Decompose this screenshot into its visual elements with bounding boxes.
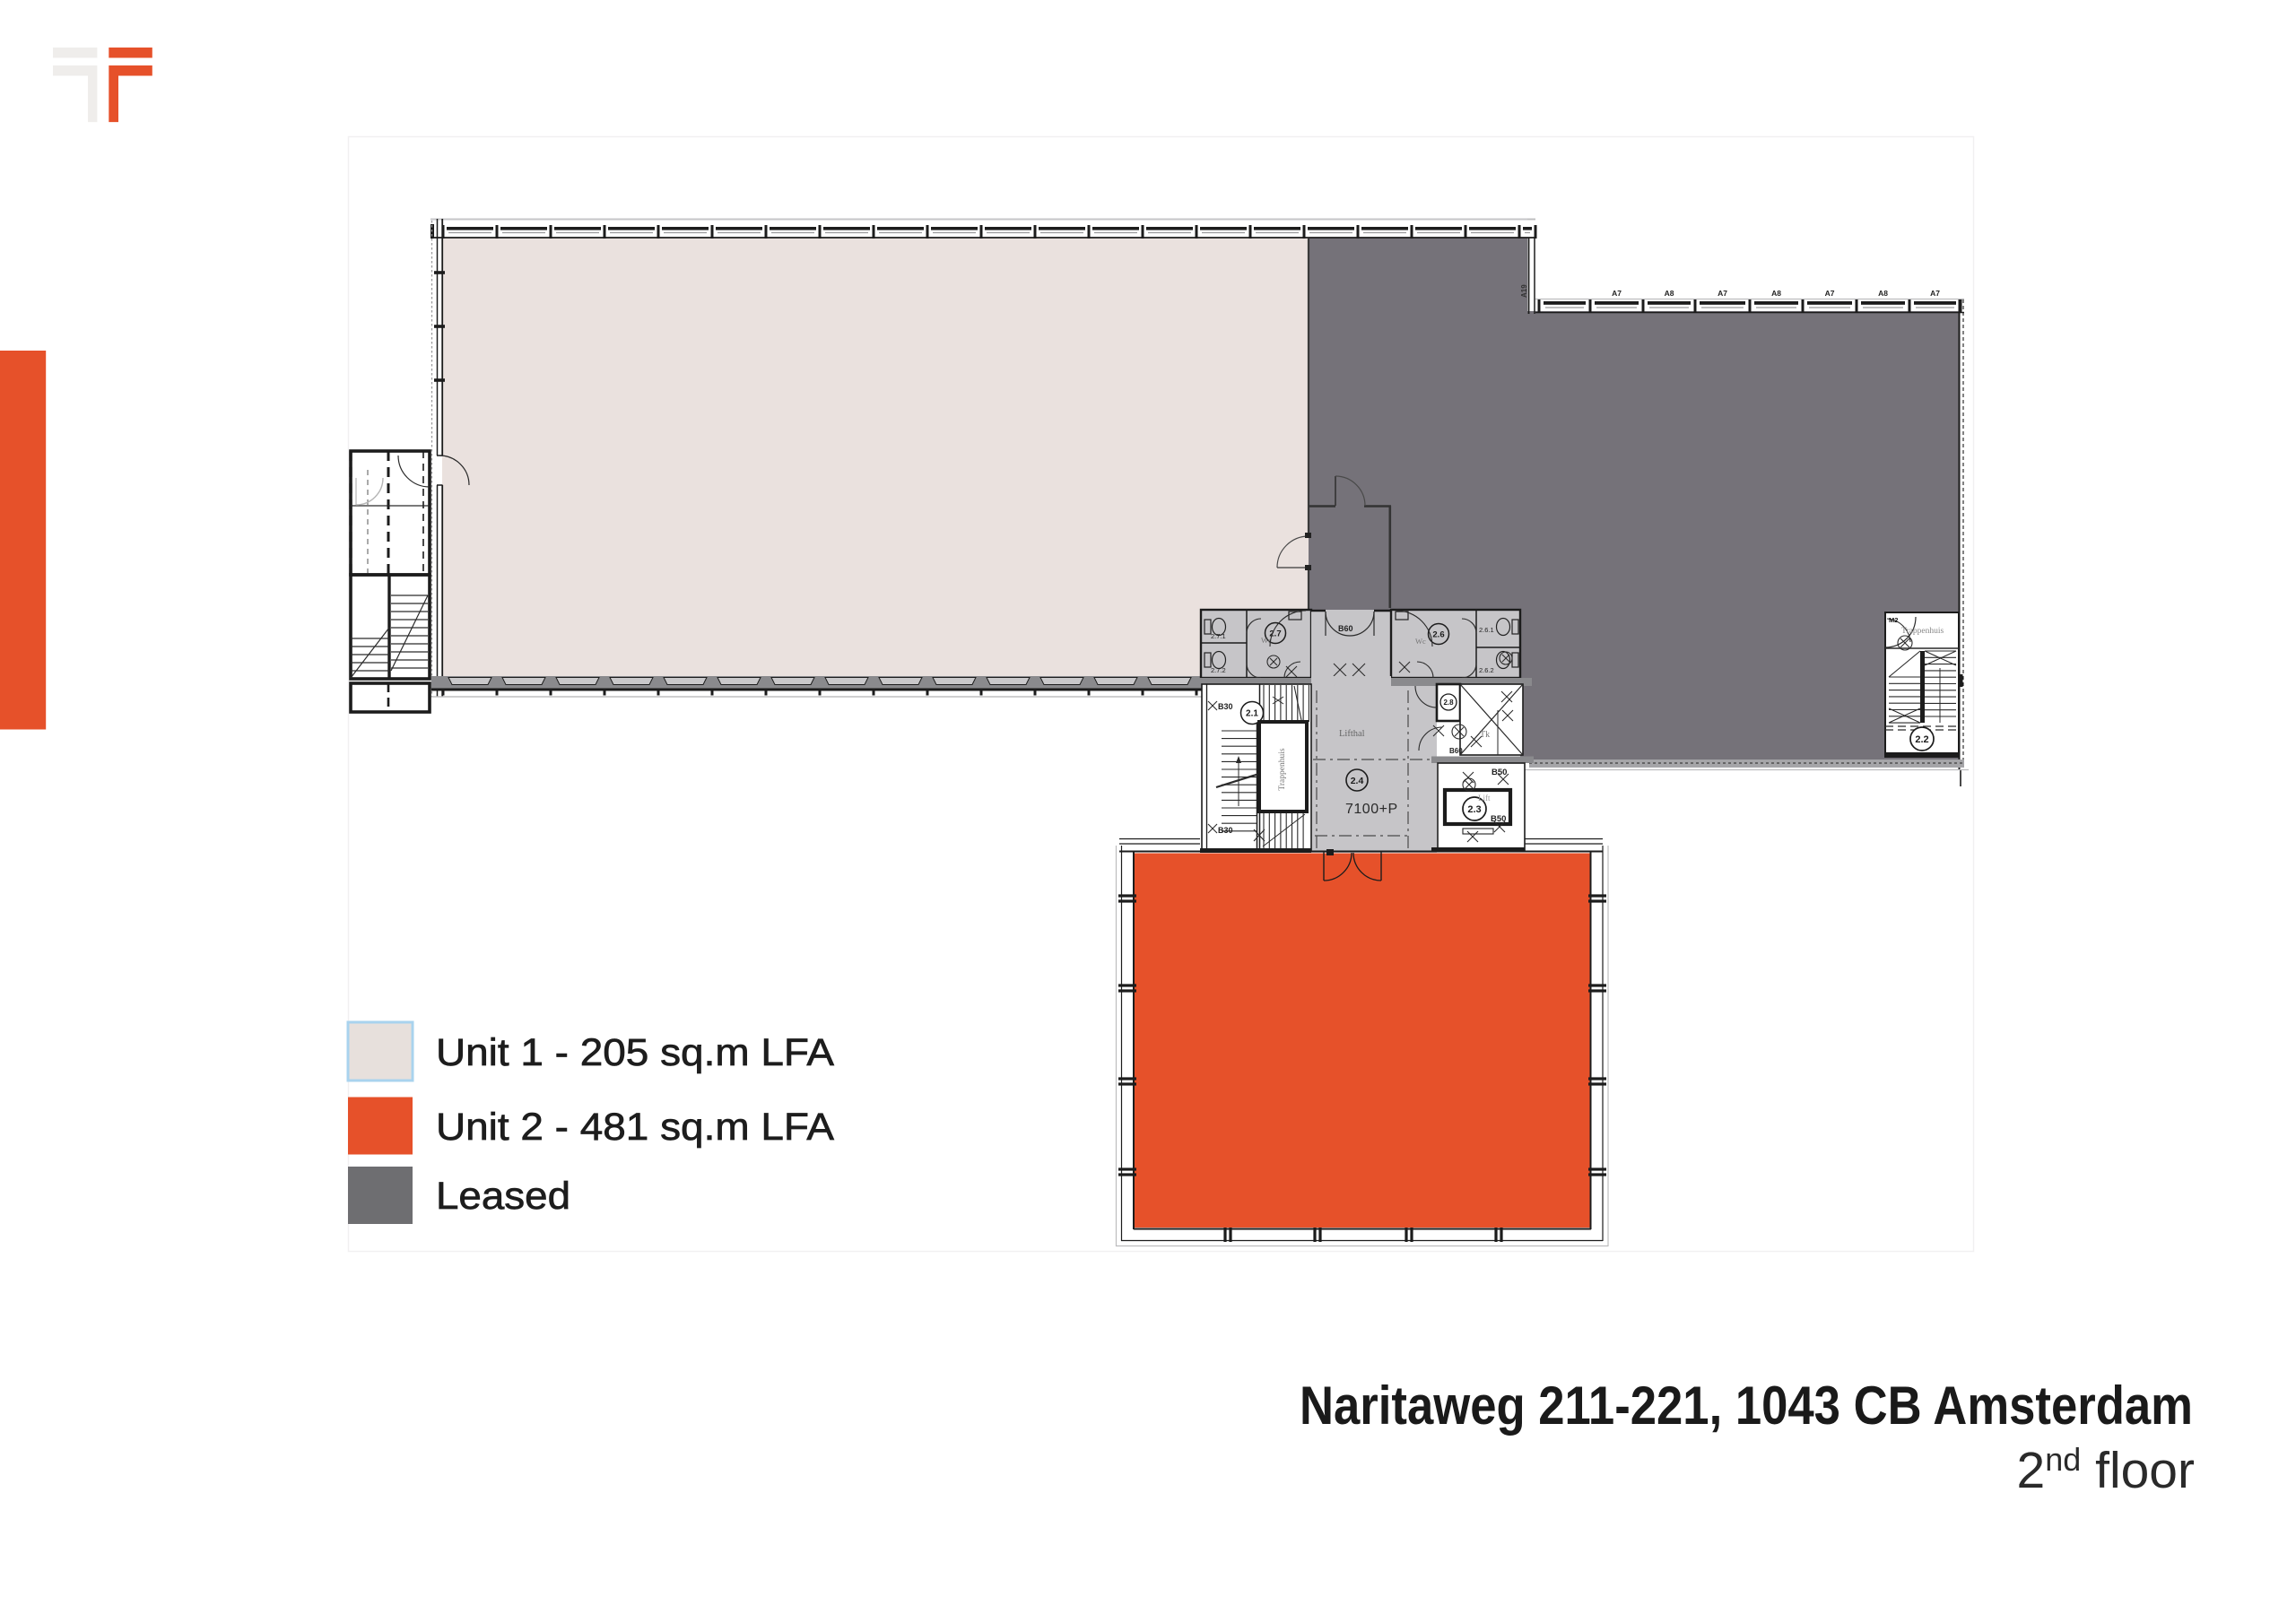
svg-text:M2: M2 bbox=[1889, 616, 1898, 624]
svg-text:A19: A19 bbox=[1520, 284, 1528, 298]
svg-text:Unit 1 - 205 sq.m LFA: Unit 1 - 205 sq.m LFA bbox=[436, 1031, 834, 1074]
svg-text:Tk: Tk bbox=[1480, 730, 1490, 740]
svg-text:7100+P: 7100+P bbox=[1345, 802, 1398, 817]
svg-text:2.1: 2.1 bbox=[1246, 709, 1258, 719]
svg-text:2.2: 2.2 bbox=[1915, 734, 1928, 745]
svg-text:B60: B60 bbox=[1449, 747, 1463, 755]
svg-text:A7: A7 bbox=[1718, 289, 1727, 298]
svg-text:Leased: Leased bbox=[436, 1175, 570, 1218]
svg-text:2.4: 2.4 bbox=[1351, 776, 1364, 786]
svg-text:B60: B60 bbox=[1338, 624, 1353, 633]
svg-text:2.6: 2.6 bbox=[1432, 629, 1444, 639]
svg-text:A8: A8 bbox=[1771, 289, 1781, 298]
svg-text:Trappenhuis: Trappenhuis bbox=[1278, 748, 1287, 790]
svg-text:B30: B30 bbox=[1218, 702, 1233, 711]
svg-text:Unit 2 - 481 sq.m LFA: Unit 2 - 481 sq.m LFA bbox=[436, 1106, 834, 1149]
svg-text:2.8: 2.8 bbox=[1443, 699, 1454, 707]
svg-text:2.7.1: 2.7.1 bbox=[1211, 632, 1226, 640]
svg-text:2.3: 2.3 bbox=[1467, 804, 1481, 815]
svg-text:Naritaweg 211-221, 1043 CB Ams: Naritaweg 211-221, 1043 CB Amsterdam bbox=[1300, 1376, 2193, 1436]
svg-text:Wc: Wc bbox=[1415, 637, 1426, 646]
svg-text:2nd floor: 2nd floor bbox=[2017, 1441, 2195, 1499]
svg-text:Lifthal: Lifthal bbox=[1339, 729, 1365, 739]
svg-text:A8: A8 bbox=[1878, 289, 1888, 298]
svg-text:A7: A7 bbox=[1825, 289, 1835, 298]
svg-text:A7: A7 bbox=[1930, 289, 1940, 298]
svg-text:A7: A7 bbox=[1612, 289, 1622, 298]
svg-text:Lift: Lift bbox=[1478, 794, 1491, 803]
svg-text:2.7.2: 2.7.2 bbox=[1211, 666, 1226, 674]
svg-text:A8: A8 bbox=[1665, 289, 1674, 298]
svg-text:2.6.2: 2.6.2 bbox=[1479, 666, 1494, 674]
svg-text:B30: B30 bbox=[1218, 826, 1233, 835]
svg-text:Trappenhuis: Trappenhuis bbox=[1901, 627, 1944, 636]
svg-text:2.6.1: 2.6.1 bbox=[1479, 626, 1494, 634]
